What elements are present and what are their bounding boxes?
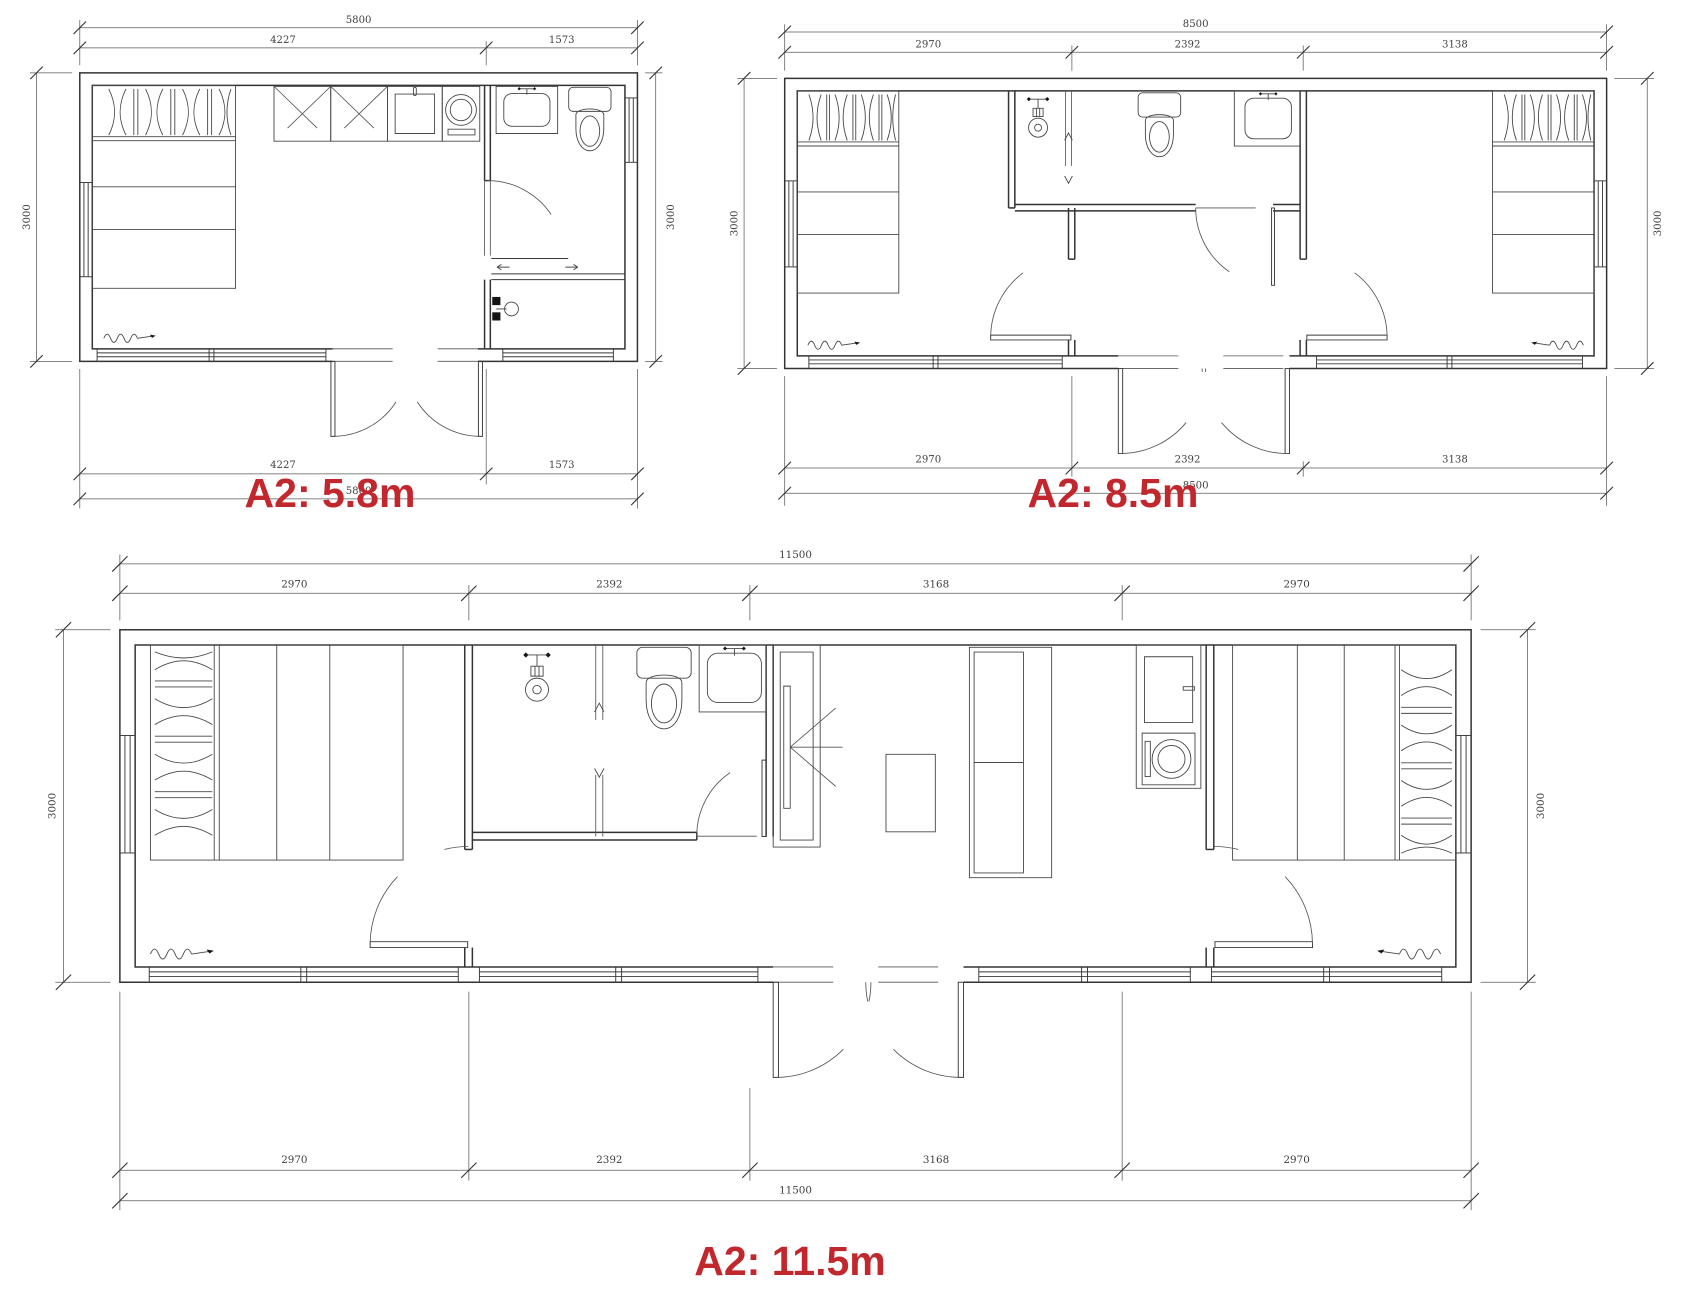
dimensions: 2970 2392 3138 8500 3000 3000 2970 2392 … (729, 19, 1663, 506)
floor-plan-sheet: 4227 1573 5800 3000 3000 4227 1573 5800 (0, 0, 1690, 1310)
shower-partition (1065, 91, 1073, 208)
dim-label: 8500 (1183, 19, 1209, 30)
interior-door (1306, 257, 1387, 340)
sofa (969, 647, 1051, 877)
window (80, 183, 92, 277)
window (1456, 735, 1471, 853)
entry-double-door (773, 982, 963, 1077)
kitchen-cabinets (274, 86, 387, 141)
window (1211, 967, 1441, 982)
bathroom-door (1196, 208, 1275, 285)
window (97, 349, 326, 361)
bedroom-wall (1300, 340, 1306, 356)
dim-label: 2970 (281, 1154, 307, 1166)
dim-label: 3000 (22, 204, 33, 230)
dim-label: 3000 (1535, 793, 1547, 819)
shower-head (523, 652, 550, 701)
dim-label: 2392 (1175, 39, 1201, 50)
dim-label: 3168 (923, 578, 949, 590)
single-bed (797, 91, 899, 293)
dim-label: 2970 (281, 578, 307, 590)
dim-label: 2970 (915, 39, 941, 50)
cooktop (442, 86, 479, 141)
window (785, 181, 798, 267)
toilet (569, 87, 611, 150)
dim-label: 3168 (923, 1154, 949, 1166)
interior-door (1214, 847, 1312, 948)
shower-head (1027, 97, 1050, 137)
toilet (637, 647, 691, 728)
bedroom-wall (465, 645, 473, 967)
wash-basin (1234, 91, 1300, 146)
dim-label: 2392 (596, 1154, 622, 1166)
kitchen-unit (1136, 645, 1201, 788)
shower-room-wall (485, 280, 491, 349)
curtain-symbol (808, 341, 860, 349)
double-bed (92, 85, 235, 288)
plan-label-8-5m: A2: 8.5m (903, 470, 1323, 517)
window (809, 356, 1062, 369)
dim-label: 2970 (915, 455, 941, 466)
interior-door (370, 847, 468, 948)
dim-label: 2970 (1283, 578, 1309, 590)
bathroom-walls (1009, 91, 1307, 259)
floor-plan-11-5m: 2970 2392 3168 2970 11500 3000 3000 2970… (20, 545, 1571, 1215)
dim-label: 3000 (1653, 210, 1664, 236)
interior-door (485, 181, 565, 258)
window (625, 98, 637, 162)
shower-partition (595, 645, 604, 837)
dim-label: 5800 (346, 15, 372, 26)
dim-label: 3138 (1442, 39, 1468, 50)
dim-label: 3000 (46, 793, 58, 819)
floor-plan-5-8m: 4227 1573 5800 3000 3000 4227 1573 5800 (0, 0, 729, 520)
window (149, 967, 458, 982)
entry-double-door (1118, 368, 1289, 453)
window (1317, 356, 1583, 369)
curtain-symbol (150, 949, 213, 959)
dim-label: 1573 (549, 35, 575, 46)
window (479, 967, 757, 982)
dim-label: 3000 (729, 210, 740, 236)
dim-label: 2392 (1175, 455, 1201, 466)
bathroom-wall (485, 85, 491, 180)
curtain-symbol (104, 334, 156, 342)
double-bed (150, 645, 403, 860)
curtain-symbol (1531, 341, 1583, 349)
bathroom-door (697, 760, 766, 836)
window (979, 967, 1191, 982)
dim-label: 3000 (666, 204, 677, 230)
curtain-symbol (1377, 949, 1440, 959)
tv-cabinet (773, 645, 842, 847)
kitchen-sink (387, 86, 442, 141)
window (503, 349, 614, 361)
bathroom-walls (472, 645, 773, 840)
exterior-walls (80, 73, 638, 361)
window (120, 735, 135, 853)
shower-mixer (492, 297, 518, 321)
dim-label: 1573 (549, 460, 575, 471)
dim-label: 2970 (1283, 1154, 1309, 1166)
coffee-table (886, 754, 935, 832)
floor-plan-8-5m: 2970 2392 3138 8500 3000 3000 2970 2392 … (712, 1, 1689, 528)
plan-label-11-5m: A2: 11.5m (580, 1238, 1000, 1285)
double-bed (1233, 645, 1456, 860)
dim-label: 11500 (779, 549, 812, 561)
dim-label: 3138 (1442, 455, 1468, 466)
toilet (1138, 93, 1181, 157)
dim-label: 4227 (270, 35, 296, 46)
wash-basin (699, 645, 766, 712)
plan-label-5-8m: A2: 5.8m (120, 470, 540, 517)
entry-double-door (331, 361, 483, 436)
dimensions: 2970 2392 3168 2970 11500 3000 3000 2970… (46, 549, 1547, 1210)
interior-door (991, 257, 1072, 340)
single-bed (1493, 91, 1595, 293)
dim-label: 11500 (779, 1185, 812, 1197)
exterior-walls (120, 630, 1471, 983)
dim-label: 2392 (596, 578, 622, 590)
shower-partition (491, 258, 625, 279)
bedroom-wall (1206, 645, 1214, 967)
exterior-walls (785, 78, 1607, 368)
window (1594, 181, 1607, 267)
wash-basin (496, 86, 558, 133)
bedroom-wall (1069, 208, 1075, 356)
